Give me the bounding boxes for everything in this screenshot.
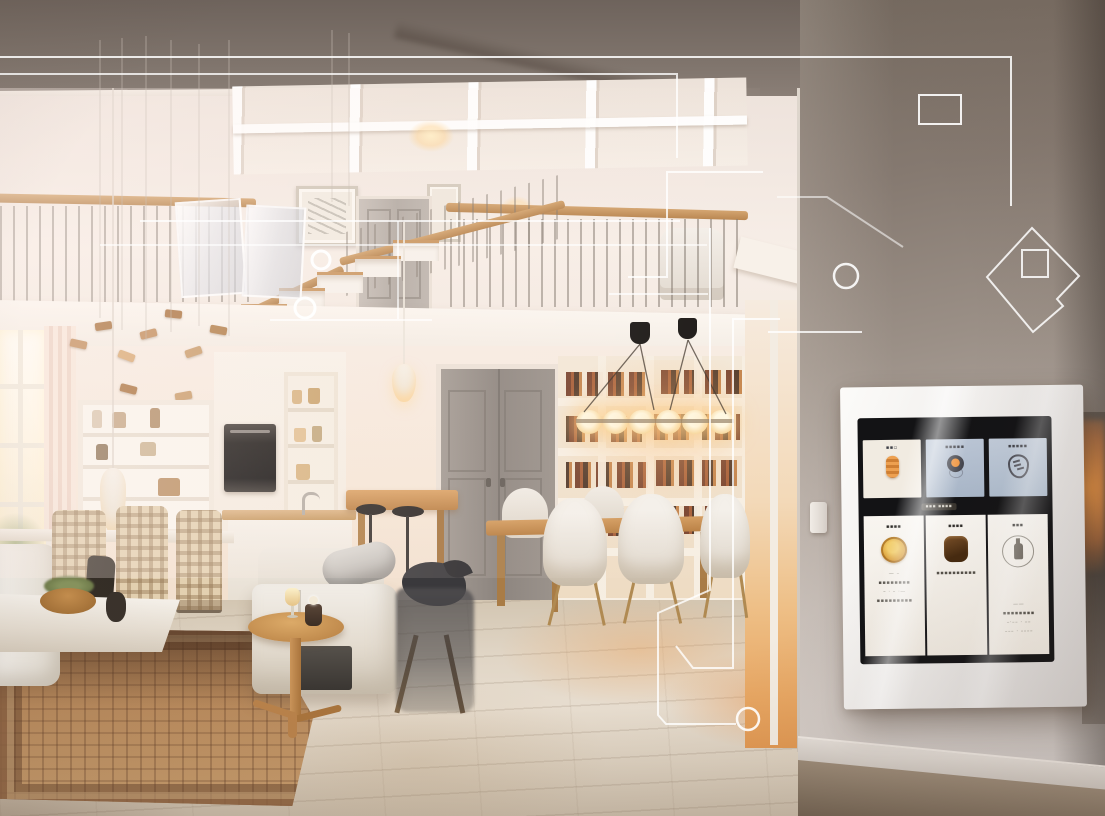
- hanging-glass-panel: [242, 204, 307, 299]
- cutting-board: [158, 478, 180, 496]
- dining-chair: [700, 494, 750, 578]
- vase: [96, 444, 108, 460]
- dark-vase: [106, 592, 126, 622]
- glass-sheen: [840, 385, 1087, 710]
- door-panel: [448, 390, 486, 472]
- ceiling-light: [408, 120, 454, 152]
- kitchen-jar: [312, 426, 322, 442]
- storage-box: [294, 646, 352, 690]
- door-panel: [504, 390, 542, 472]
- vase: [150, 408, 160, 428]
- dining-chair: [618, 494, 684, 584]
- chandelier-canopy: [630, 322, 650, 344]
- chandelier-globe: [576, 410, 602, 434]
- kitchen-jar: [292, 390, 302, 404]
- chandelier-globe: [656, 410, 682, 434]
- wine-glass: [285, 588, 300, 606]
- chandelier-globe: [603, 410, 629, 434]
- vase: [140, 442, 156, 456]
- smart-home-scene: ▪▪▫ ▪▪▪▪▪ ▪▪▪▪▪ ▪▪▪ ▪▪▪▪ ▪▪▪▪: [0, 0, 1105, 816]
- stool-leg: [406, 516, 409, 572]
- plaid-chair: [176, 510, 222, 613]
- door-knob: [500, 478, 505, 487]
- wooden-bowl: [40, 588, 96, 614]
- mobile-wood-piece: [165, 309, 183, 319]
- chandelier-globe: [709, 410, 735, 434]
- side-table-foot: [288, 712, 297, 738]
- pendant-cord: [403, 222, 405, 368]
- curtain: [44, 326, 76, 536]
- kitchen-jar: [294, 428, 306, 442]
- small-cup: [305, 604, 322, 626]
- hallway-door-trim: [770, 300, 778, 745]
- chandelier-globe: [682, 410, 708, 434]
- wall-oven: [224, 424, 276, 492]
- smart-home-wall-panel[interactable]: ▪▪▫ ▪▪▪▪▪ ▪▪▪▪▪ ▪▪▪ ▪▪▪▪ ▪▪▪▪: [840, 385, 1087, 710]
- vase: [112, 412, 126, 428]
- chandelier-canopy: [678, 318, 697, 339]
- pendant-cord: [112, 88, 114, 470]
- light-switch: [810, 502, 827, 533]
- chandelier-globe: [629, 410, 655, 434]
- white-flower: [309, 596, 318, 605]
- chandelier: [576, 408, 734, 436]
- side-table-pedestal: [290, 638, 301, 718]
- wine-glass-base: [287, 615, 298, 618]
- dining-table-leg: [497, 532, 505, 606]
- hanging-glass-panel: [175, 198, 248, 298]
- kitchen-jar: [296, 464, 310, 480]
- dining-chair: [543, 498, 607, 586]
- kitchen-jar: [308, 388, 320, 404]
- mesh-throw-blanket: [396, 588, 474, 712]
- island-countertop: [222, 510, 356, 520]
- faucet: [302, 492, 320, 515]
- vase: [92, 410, 102, 428]
- door-knob: [486, 478, 491, 487]
